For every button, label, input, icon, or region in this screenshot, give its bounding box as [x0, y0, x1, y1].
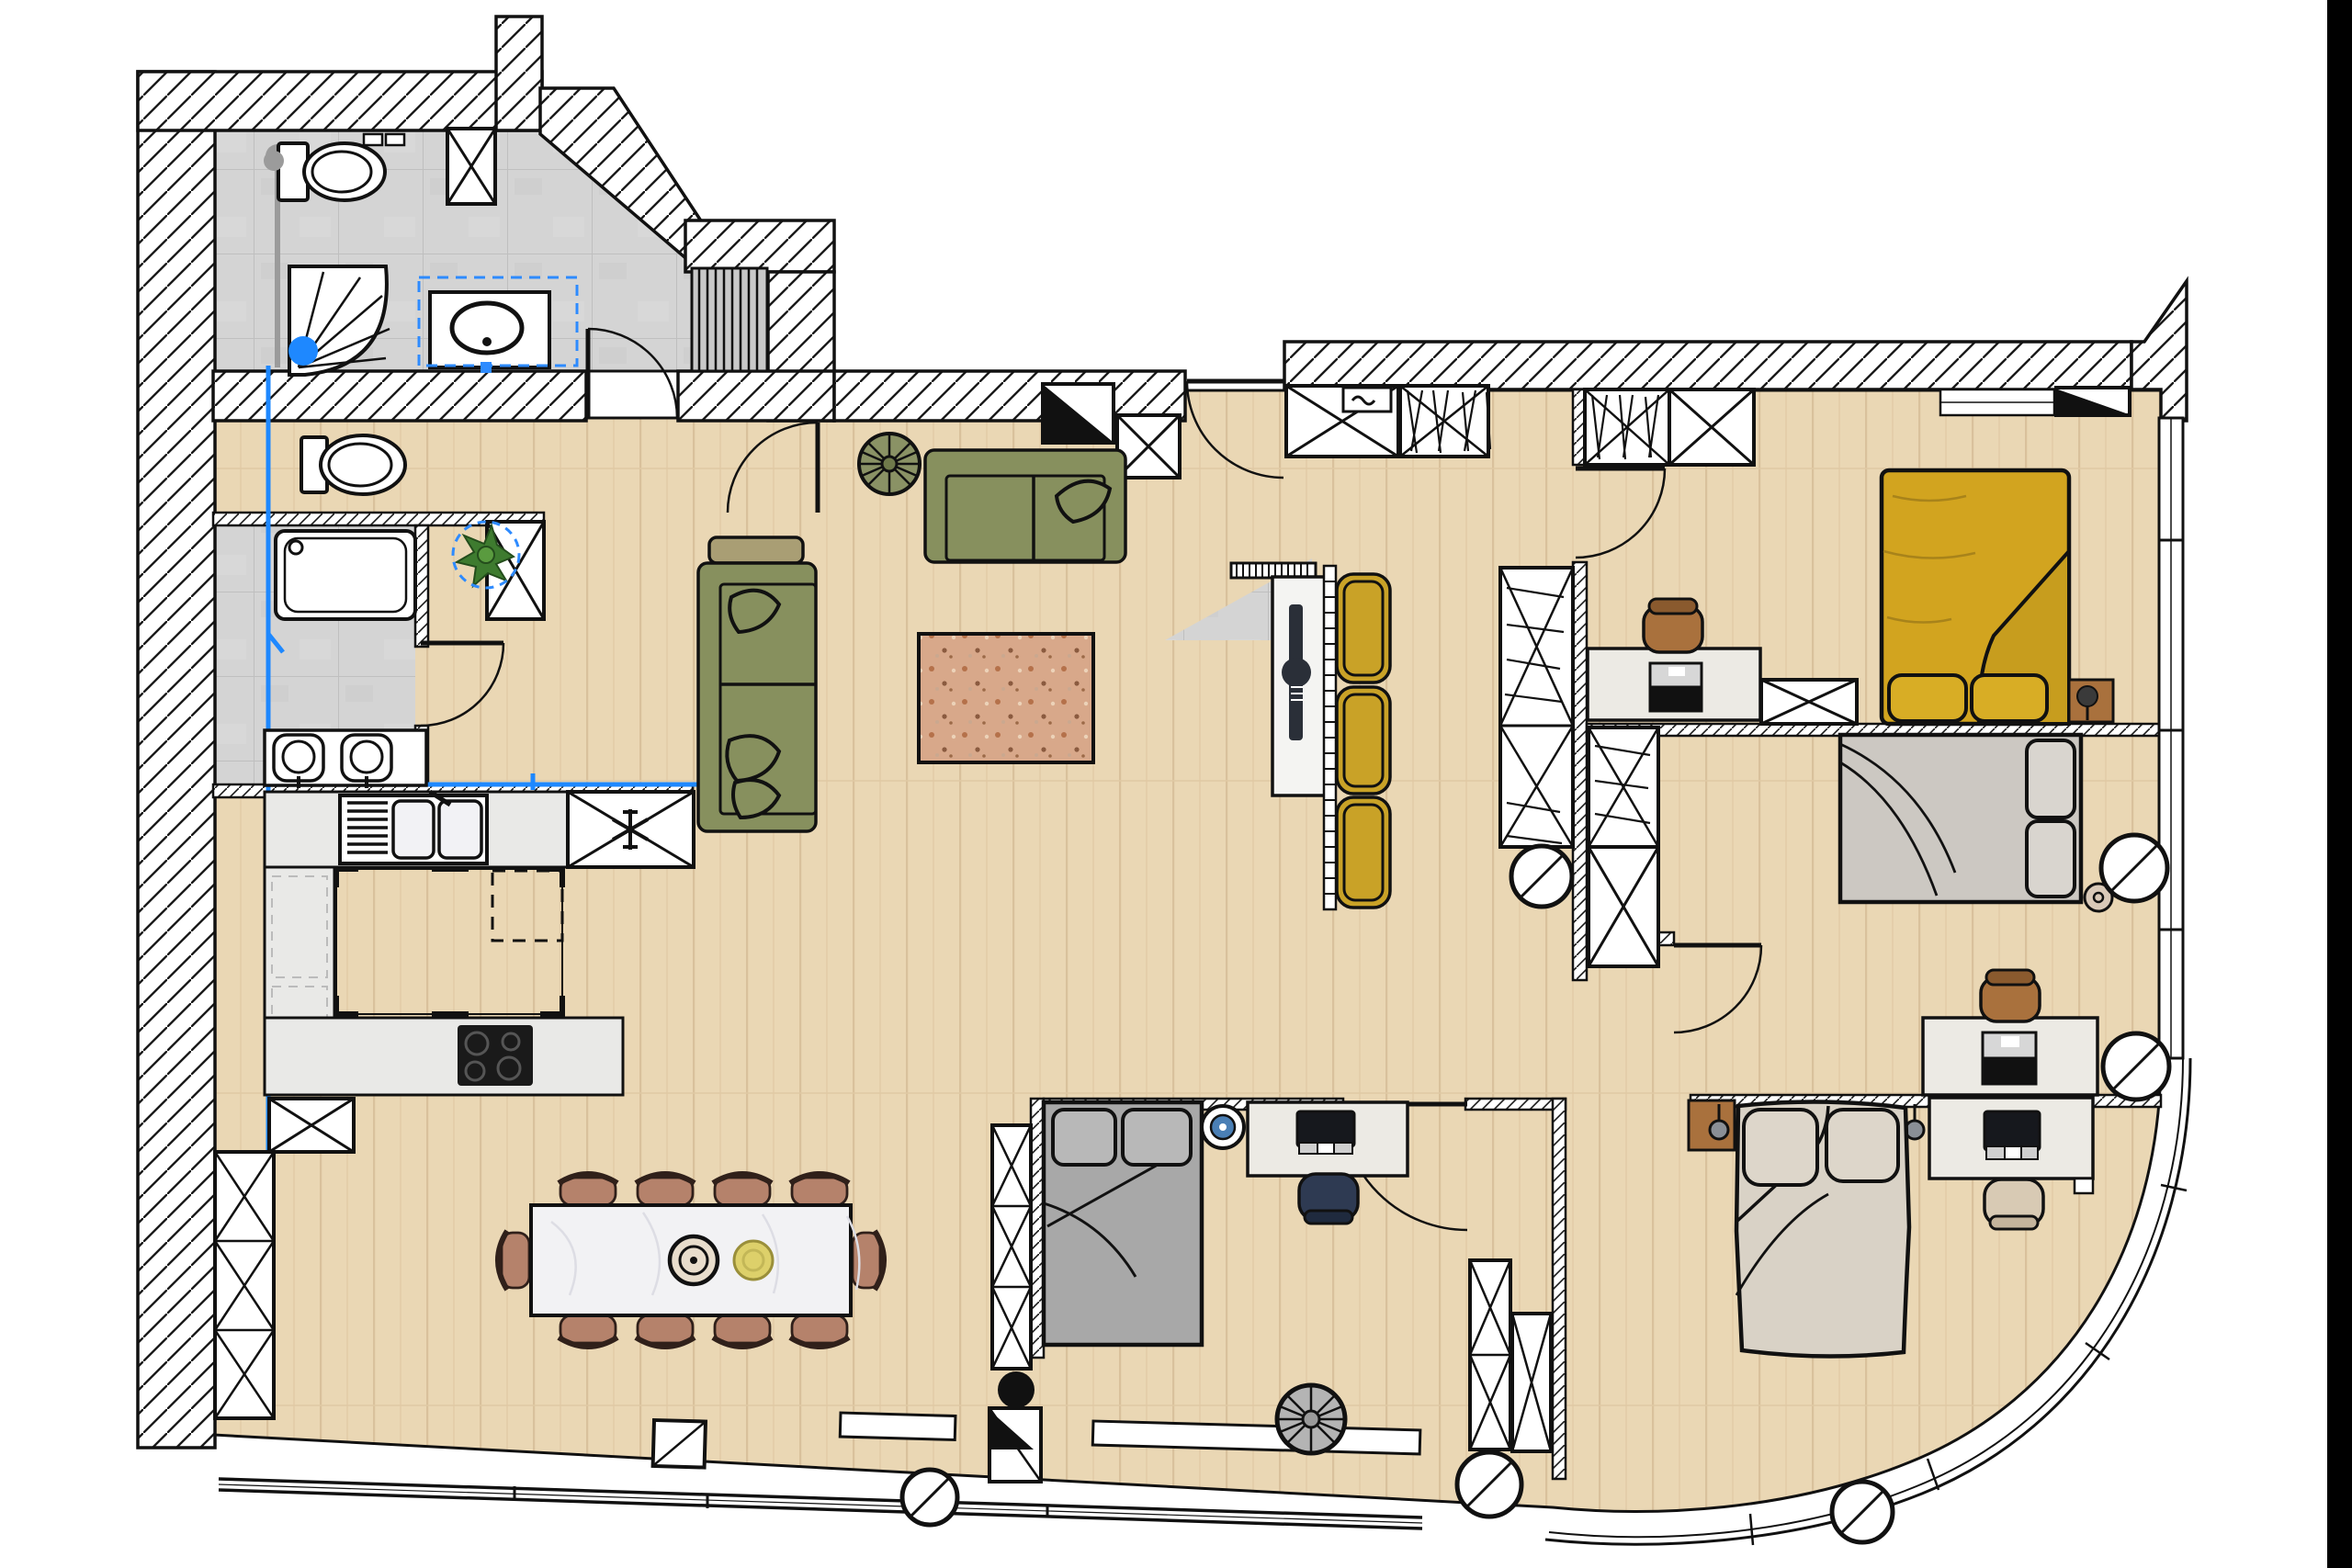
ceiling-fan[interactable]: [859, 434, 920, 494]
bed4-tall-wardrobe[interactable]: [992, 1125, 1031, 1369]
wall-hall-vertical: [1573, 562, 1587, 980]
floorplan-canvas: [0, 0, 2352, 1568]
wall-top-bathroom: [138, 72, 542, 130]
rug[interactable]: [919, 634, 1093, 762]
column-right-1: [2101, 835, 2167, 901]
wall-top-right: [1284, 342, 2131, 389]
master-bed[interactable]: [1882, 470, 2069, 724]
window-sill-slab-1: [840, 1413, 955, 1439]
ladder-strip: [1324, 566, 1336, 909]
bed2-pillow-1: [2027, 740, 2075, 818]
sofa-vertical[interactable]: [698, 537, 816, 831]
wall-tower: [496, 17, 542, 130]
toilet[interactable]: [278, 143, 385, 200]
hall-wardrobe[interactable]: [1500, 568, 1573, 847]
balcony-threshold[interactable]: [653, 1420, 706, 1468]
desk-leg: [2075, 1179, 2093, 1193]
hall-x-closet-right[interactable]: [1286, 386, 1398, 457]
selection-handle[interactable]: [481, 362, 492, 373]
wall-bedroom4-right: [1553, 1099, 1566, 1479]
master-desk[interactable]: [1588, 649, 1760, 720]
wall-band-b: [685, 220, 834, 272]
image-edge-bar: [2327, 0, 2352, 1568]
sink-vanity[interactable]: [430, 292, 549, 367]
laptop-icon-2: [1983, 1032, 2036, 1084]
monitor-icon-2: [1984, 1111, 2040, 1159]
kitchen-sink-unit[interactable]: [340, 792, 487, 863]
vent-triangle-master: [2056, 388, 2130, 415]
bed4-pillow-2: [1123, 1110, 1191, 1165]
kitchen-x-bench[interactable]: [269, 1099, 354, 1152]
induction-cooktop[interactable]: [458, 1025, 533, 1086]
bed3-chair[interactable]: [1984, 1179, 2043, 1229]
column-bottom-1: [902, 1470, 957, 1525]
bed2-pillow-2: [2027, 821, 2075, 897]
sofa-horizontal[interactable]: [925, 450, 1125, 562]
master-x-closet-top[interactable]: [1669, 389, 1754, 465]
shower[interactable]: [288, 266, 390, 375]
kitchen-counter-bottom[interactable]: [265, 1018, 623, 1095]
laptop-icon: [1650, 663, 1702, 711]
bed4-bed[interactable]: [1044, 1102, 1202, 1345]
shower-drain-selected[interactable]: [288, 336, 318, 366]
bathtub[interactable]: [276, 531, 415, 619]
bed4-pillow-1: [1053, 1110, 1115, 1165]
bed4-x-closet-1[interactable]: [1470, 1260, 1510, 1450]
wall-bedroom4-top-right: [1465, 1099, 1566, 1110]
master-pillow-2: [1972, 675, 2047, 721]
bed4-navy-chair[interactable]: [1299, 1174, 1358, 1224]
plate-decor-1: [670, 1236, 718, 1284]
column-curve: [1832, 1482, 1893, 1542]
master-x-closet-desk[interactable]: [1761, 680, 1857, 724]
x-cabinet-bath-top[interactable]: [447, 129, 495, 204]
wc-room: [301, 435, 405, 494]
bedroom2-desk-chair[interactable]: [1981, 970, 2040, 1021]
gold-armchairs[interactable]: [1337, 574, 1390, 908]
floor-drain: [264, 151, 284, 171]
bedroom2-bed[interactable]: [1840, 735, 2081, 902]
bedroom2-desk[interactable]: [1923, 1018, 2098, 1095]
electrical-panel[interactable]: [1043, 384, 1114, 443]
fridge-freezer[interactable]: [568, 792, 694, 867]
bedroom2-x-closet[interactable]: [1589, 847, 1658, 966]
wall-bath2-right-top: [415, 525, 428, 647]
hall-wardrobe-clothes[interactable]: [1400, 386, 1490, 457]
monitor-icon: [1297, 1111, 1354, 1154]
lamp-icon: [2077, 686, 2098, 706]
bed4-desk[interactable]: [1248, 1102, 1408, 1176]
bed4-x-closet-2[interactable]: [1512, 1314, 1551, 1451]
safe-box[interactable]: [1343, 388, 1391, 412]
bed4-blue-table[interactable]: [1202, 1106, 1244, 1148]
plate-decor-2: [734, 1241, 773, 1280]
bedroom2-wardrobe-clothes[interactable]: [1589, 728, 1658, 854]
wall-bathroom-bottom-right: [678, 371, 834, 421]
vent-box-bottom: [989, 1408, 1041, 1482]
bed3-pillow-2: [1826, 1110, 1898, 1181]
column-right-2: [2103, 1033, 2169, 1100]
slatted-bench[interactable]: [692, 268, 767, 371]
stove-black-circle[interactable]: [998, 1371, 1035, 1408]
toilet-2[interactable]: [301, 435, 405, 494]
bed3-pillow-1: [1744, 1110, 1817, 1185]
kitchen-island[interactable]: [336, 869, 562, 1014]
master-desk-chair[interactable]: [1644, 599, 1702, 652]
double-sink-vanity[interactable]: [265, 730, 426, 788]
master-pillow-1: [1889, 675, 1966, 721]
wall-left: [138, 72, 215, 1448]
ottoman[interactable]: [709, 537, 803, 563]
tv-mount: [1282, 658, 1311, 687]
pantry-x-shelves[interactable]: [215, 1152, 274, 1418]
wall-entry-top: [834, 371, 1185, 421]
column-bottom-2: [1457, 1452, 1521, 1517]
master-nightstand[interactable]: [2069, 680, 2113, 722]
column-hall: [1511, 846, 1572, 907]
spiral-stair[interactable]: [1277, 1385, 1345, 1453]
bed3-bed[interactable]: [1736, 1101, 1909, 1356]
master-wardrobe-clothes[interactable]: [1585, 389, 1669, 465]
